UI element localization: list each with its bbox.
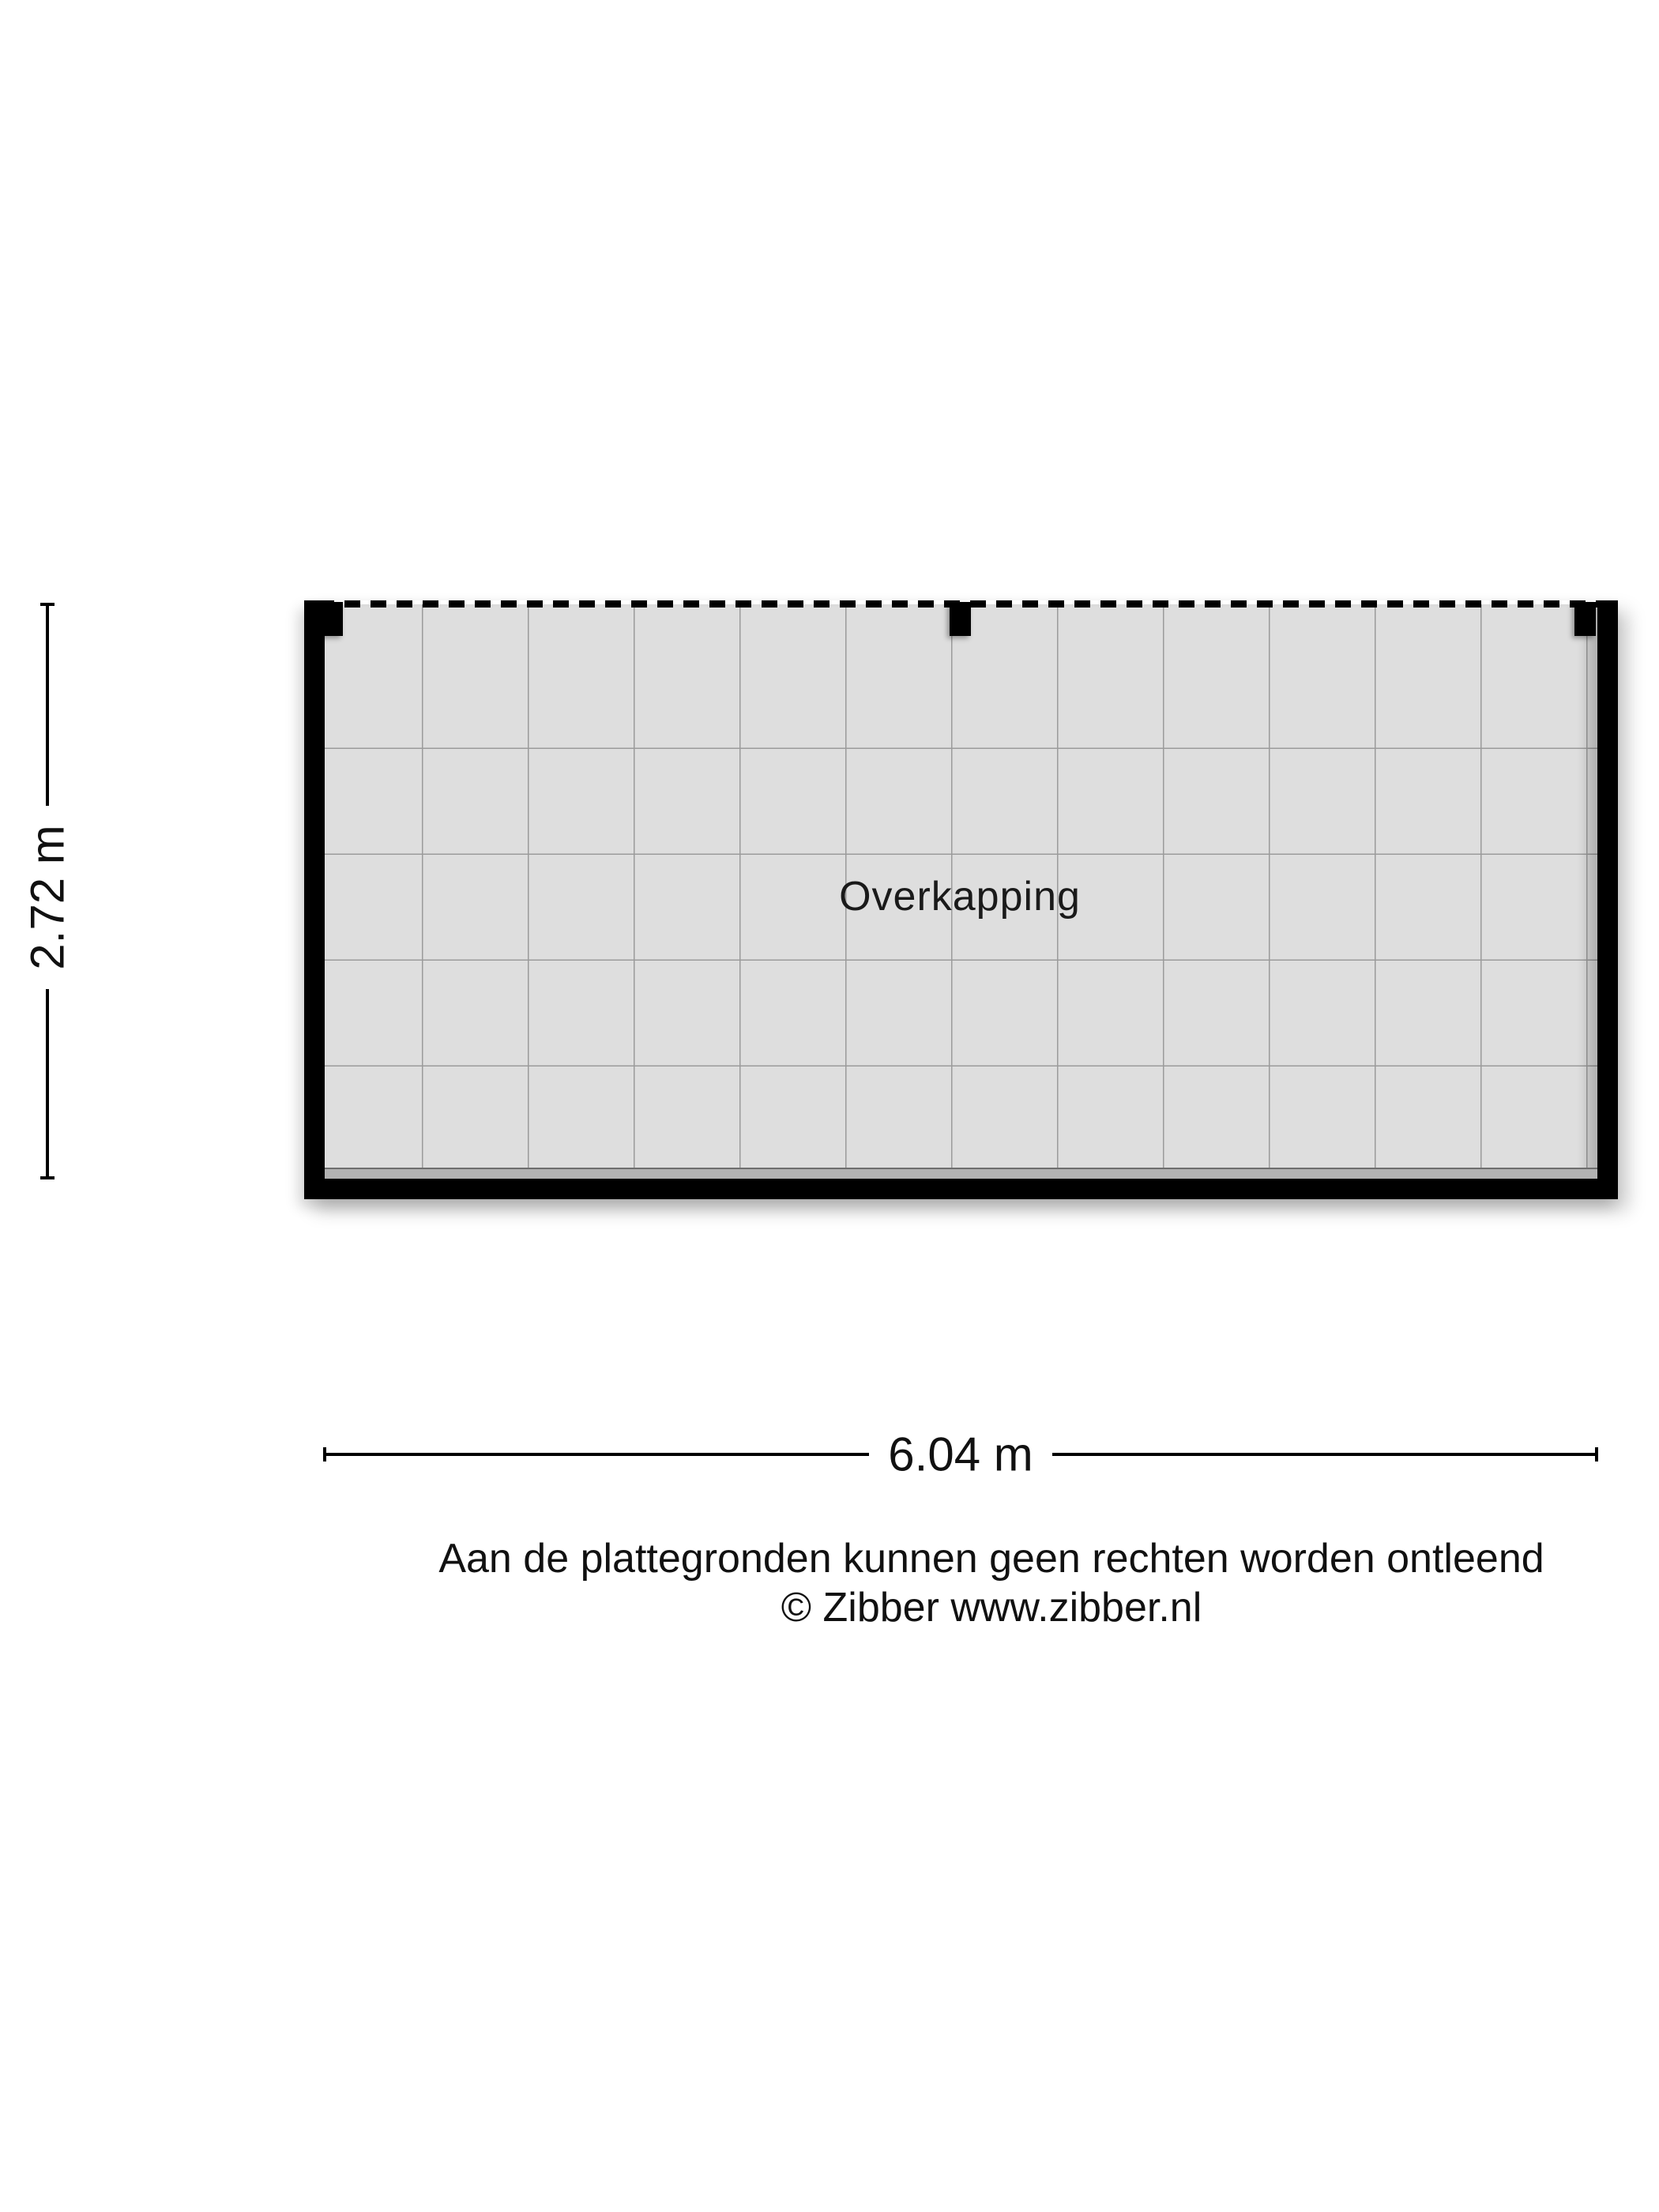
floor-edge-band: [325, 1168, 1597, 1179]
dimension-width-tick-left: [323, 1447, 326, 1461]
dimension-width-line-right: [1052, 1453, 1597, 1456]
support-post-right: [1574, 602, 1596, 636]
support-post-middle: [950, 602, 971, 636]
dimension-width-tick-right: [1595, 1447, 1598, 1461]
dimension-height-tick-bottom: [40, 1176, 55, 1179]
footer: Aan de plattegronden kunnen geen rechten…: [324, 1534, 1659, 1632]
dimension-height-line-lower: [46, 989, 49, 1179]
dimension-height-label: 2.72 m: [21, 825, 75, 969]
room-label: Overkapping: [839, 873, 1081, 920]
support-post-left: [322, 602, 343, 636]
dimension-height-line-upper: [46, 604, 49, 806]
dimension-width-label: 6.04 m: [888, 1428, 1033, 1482]
disclaimer-text: Aan de plattegronden kunnen geen rechten…: [324, 1534, 1659, 1583]
dimension-height-tick-top: [40, 603, 55, 606]
copyright-text: © Zibber www.zibber.nl: [324, 1583, 1659, 1632]
dimension-width-line-left: [325, 1453, 869, 1456]
floor-plan-page: Overkapping 2.72 m 6.04 m Aan de platteg…: [0, 0, 1659, 2212]
